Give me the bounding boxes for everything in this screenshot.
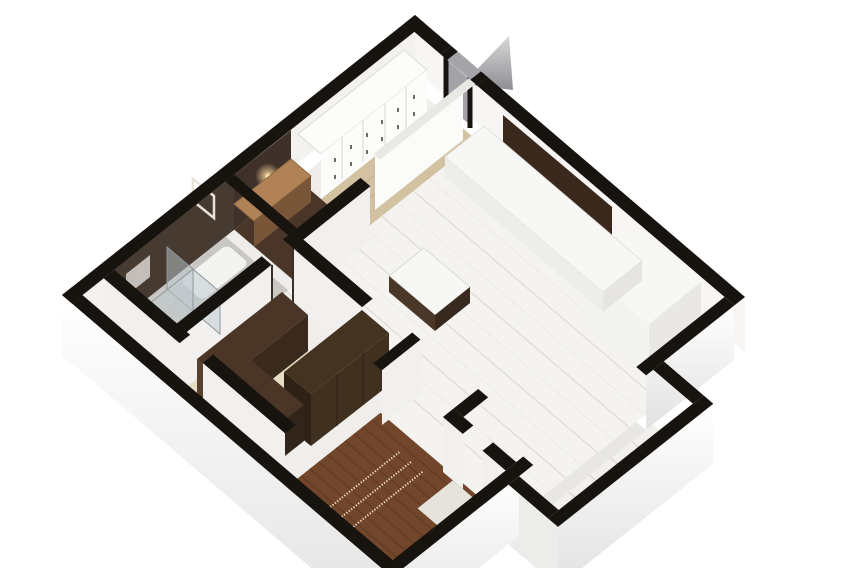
floor-plan-stage <box>0 0 852 568</box>
floor-plan-svg <box>0 0 852 568</box>
